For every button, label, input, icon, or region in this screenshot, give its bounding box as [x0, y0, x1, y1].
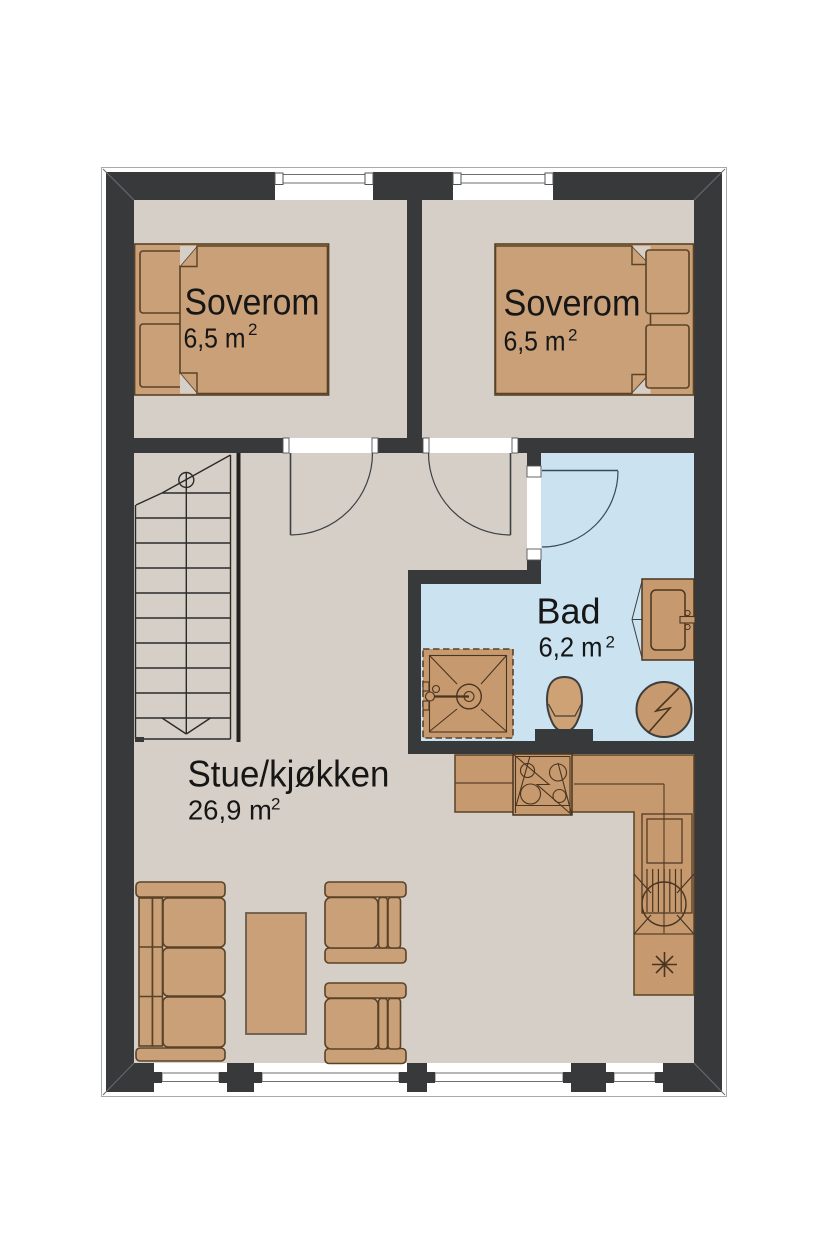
svg-text:Soverom: Soverom [504, 283, 641, 324]
svg-text:Bad: Bad [537, 591, 601, 632]
svg-text:26,9 m: 26,9 m [188, 794, 272, 825]
svg-text:Stue/kjøkken: Stue/kjøkken [188, 754, 390, 795]
svg-text:6,2 m: 6,2 m [539, 632, 603, 663]
svg-text:2: 2 [271, 795, 280, 814]
svg-text:6,5 m: 6,5 m [504, 326, 566, 357]
svg-text:2: 2 [248, 320, 257, 339]
svg-text:2: 2 [606, 633, 615, 652]
svg-text:6,5 m: 6,5 m [184, 323, 246, 354]
svg-text:2: 2 [568, 326, 577, 345]
svg-text:Soverom: Soverom [185, 282, 320, 323]
